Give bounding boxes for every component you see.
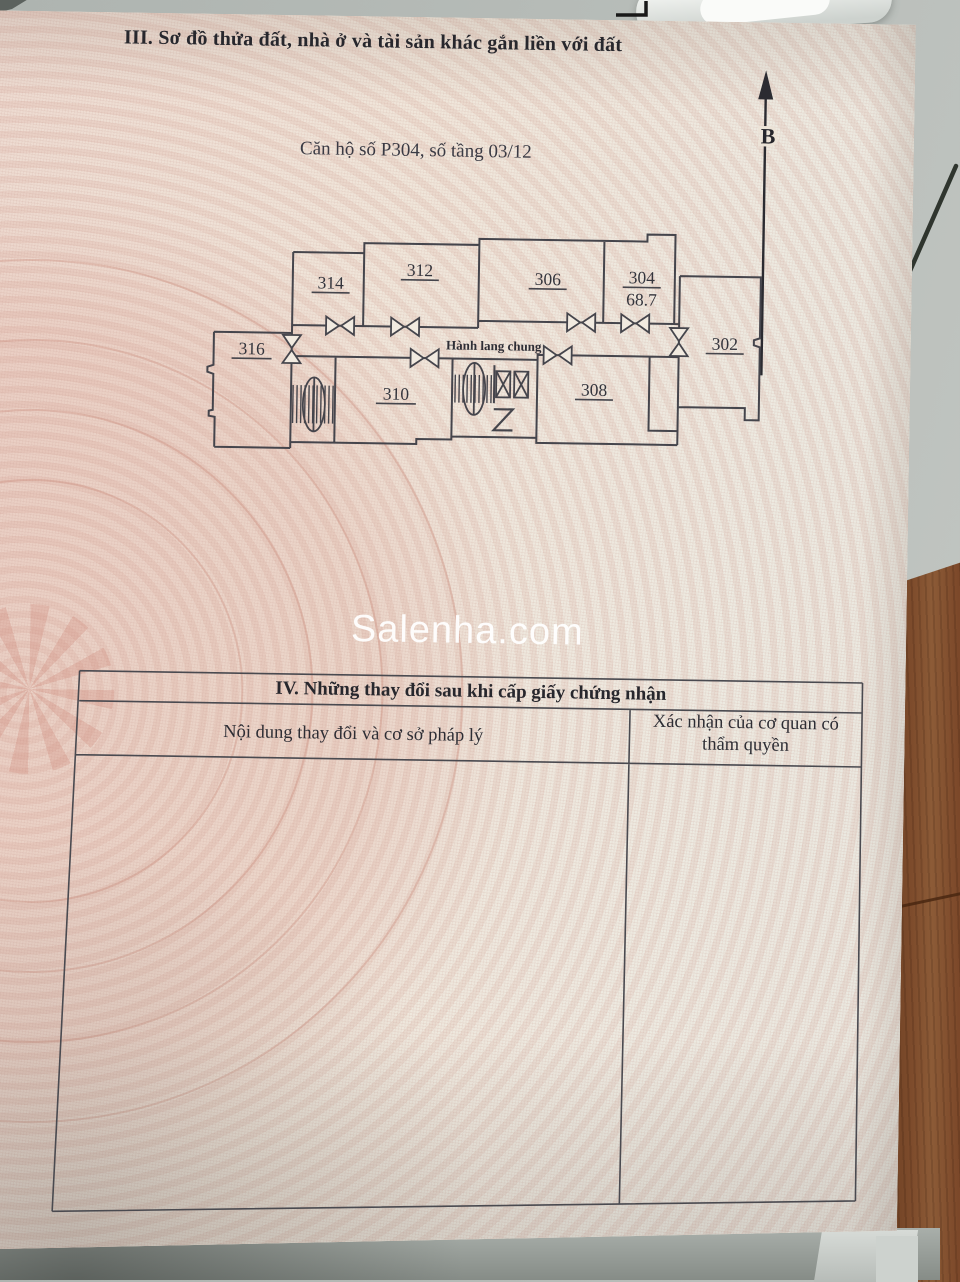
watermark: Salenha.com — [351, 608, 584, 655]
room-label-314: 314 — [317, 272, 344, 292]
room-label-306: 306 — [535, 269, 562, 289]
room-label-310: 310 — [383, 383, 410, 403]
room-label-312: 312 — [407, 260, 434, 280]
dark-diagonal-edge — [906, 166, 956, 280]
north-arrow-label: B — [761, 123, 776, 148]
north-arrow — [754, 70, 774, 375]
room-label-304: 304 — [629, 267, 656, 287]
corridor-label: Hành lang chung — [446, 337, 542, 354]
room-label-308: 308 — [581, 380, 608, 400]
page-content: III. Sơ đồ thửa đất, nhà ở và tài sản kh… — [0, 10, 916, 1265]
elevator-symbols — [496, 371, 528, 397]
stairs-symbol-1 — [292, 377, 333, 432]
black-corner-mark — [616, 1, 646, 15]
zigzag-symbol — [493, 409, 512, 430]
room-label-316: 316 — [238, 338, 265, 358]
room-304-area: 68.7 — [626, 289, 657, 309]
photo-of-certificate: { "certificate": { "section3_title": "II… — [0, 0, 960, 1280]
stairs-symbol-2 — [455, 363, 492, 416]
section4-column-header-2: Xác nhận của cơ quan có thẩm quyền — [646, 711, 845, 758]
room-label-302: 302 — [712, 334, 739, 354]
folded-paper-corner-2 — [876, 1236, 918, 1282]
certificate-page: III. Sơ đồ thửa đất, nhà ở và tài sản kh… — [0, 10, 916, 1265]
